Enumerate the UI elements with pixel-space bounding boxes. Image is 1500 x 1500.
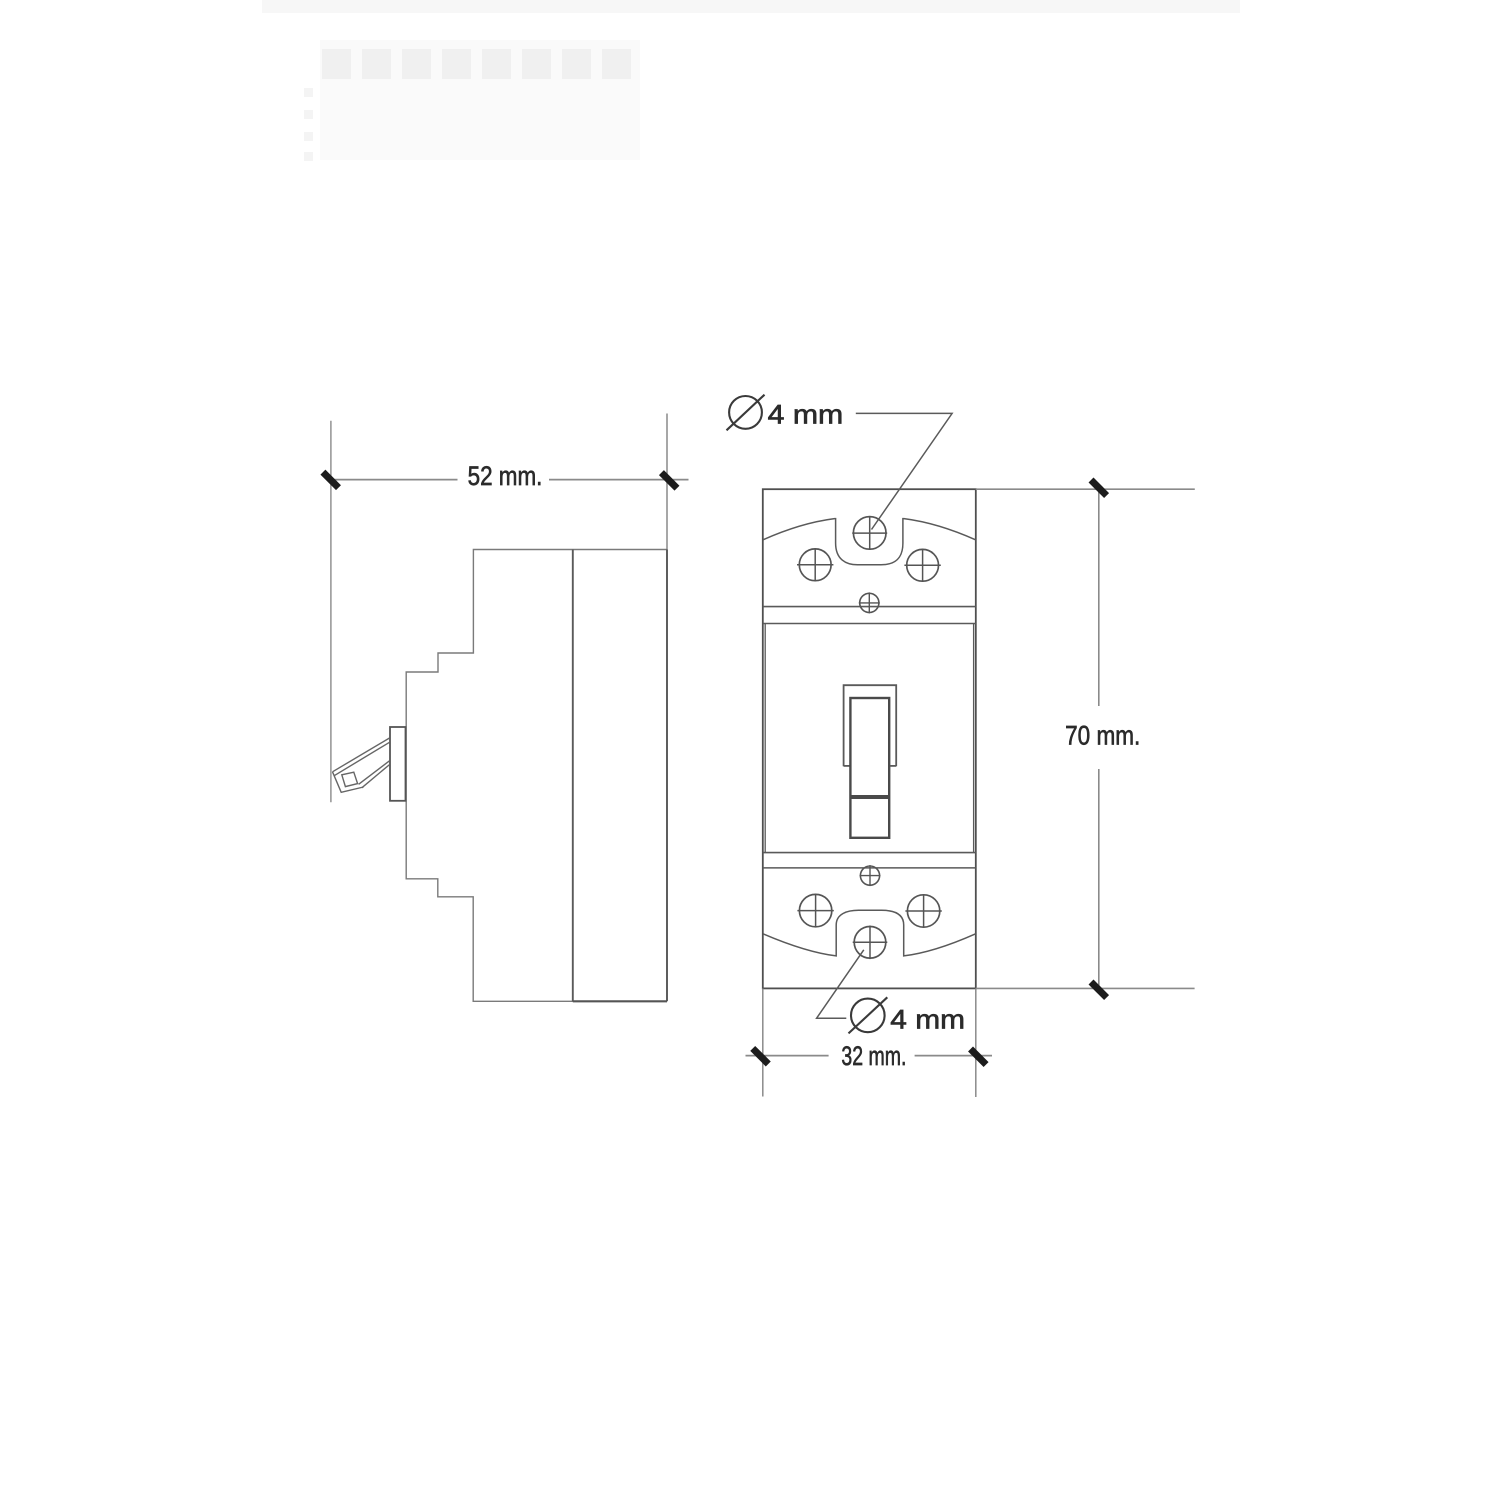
svg-text:4 mm: 4 mm bbox=[768, 400, 844, 430]
svg-text:52 mm.: 52 mm. bbox=[468, 461, 543, 491]
svg-text:70 mm.: 70 mm. bbox=[1065, 721, 1140, 751]
svg-text:32 mm.: 32 mm. bbox=[841, 1041, 906, 1071]
svg-text:4 mm: 4 mm bbox=[890, 1004, 965, 1034]
